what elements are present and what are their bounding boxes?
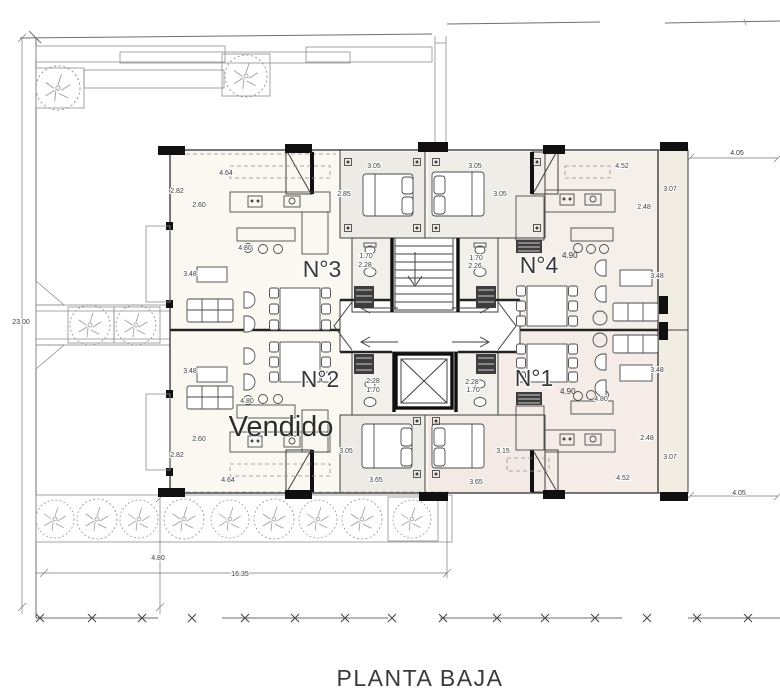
planter (222, 54, 270, 96)
dimension-label: 3.15 (496, 448, 510, 455)
unit-height-note-n1: 4.90 (560, 387, 576, 396)
dimension-label: 3.07 (663, 454, 677, 461)
dimension-label: 2.48 (640, 435, 654, 442)
dimension-label: 4.05 (732, 490, 746, 497)
dining-table (280, 288, 320, 330)
dimension-label: 23.00 (12, 319, 30, 326)
dimension-label: 4.05 (730, 150, 744, 157)
dimension-label: 4.80 (151, 555, 165, 562)
dimension-label: 2.60 (192, 202, 206, 209)
dimension-label: 2.28 (366, 378, 380, 385)
dimension-label: 2.60 (192, 436, 206, 443)
tree-icon (342, 499, 382, 539)
dimension-label: 1.70 (466, 387, 480, 394)
shower (354, 286, 374, 308)
dimension-label: 2.26 (468, 263, 482, 270)
entry-walkway (36, 281, 170, 369)
garden-strip (36, 495, 452, 542)
dimension-label: 4.80 (238, 245, 252, 252)
unit-label-n3: N°3 (303, 256, 342, 282)
floor-plan-drawing: 4.64 2.82 2.60 3.48 4.80 3.05 2.85 3.05 … (0, 0, 780, 691)
dimension-label: 3.05 (367, 163, 381, 170)
floor-plan-sheet: 4.64 2.82 2.60 3.48 4.80 3.05 2.85 3.05 … (0, 0, 780, 691)
dimension-label: 2.82 (170, 188, 184, 195)
dimension-label: 4.64 (221, 477, 235, 484)
unit-label-n2: N°2 (301, 366, 340, 392)
tree-icon (254, 499, 294, 539)
tree-icon (120, 500, 158, 538)
dimension-label: 3.48 (650, 367, 664, 374)
dimension-label: 3.48 (650, 273, 664, 280)
fence-line (36, 614, 780, 622)
sideboard (197, 367, 227, 382)
dimension-label: 3.07 (663, 186, 677, 193)
tree-icon (36, 500, 74, 538)
tree-icon (211, 500, 249, 538)
tree-icon (36, 66, 80, 110)
dimension-label: 3.05 (468, 163, 482, 170)
tree-icon (393, 500, 431, 538)
dimension-label: 1.70 (469, 255, 483, 262)
floor-title: PLANTA BAJA (337, 665, 504, 691)
dimension-label: 2.85 (337, 191, 351, 198)
sofa (613, 335, 658, 353)
sold-label: Vendido (229, 411, 334, 443)
planter (388, 497, 438, 541)
dimension-label: 3.05 (493, 191, 507, 198)
dimension-label: 2.82 (170, 452, 184, 459)
dimension-label: 4.64 (219, 170, 233, 177)
tree-icon (225, 55, 267, 97)
side-terrace (146, 394, 170, 470)
sink-icon (364, 398, 376, 407)
planter-band (36, 46, 432, 110)
sofa (187, 386, 233, 409)
dimension-label: 3.05 (339, 448, 353, 455)
dimension-label: 4.80 (240, 398, 254, 405)
shower (476, 286, 496, 308)
unit-label-n4: N°4 (520, 252, 559, 278)
sideboard (620, 270, 652, 286)
tree-icon (77, 499, 117, 539)
unit-label-n1: N°1 (515, 365, 554, 391)
dimension-label: 4.80 (594, 396, 608, 403)
dimension-label: 3.48 (183, 271, 197, 278)
sofa (187, 299, 233, 322)
sofa (613, 303, 658, 321)
dimension-label: 16.35 (231, 571, 249, 578)
sink-icon (474, 398, 486, 407)
dimension-label: 4.52 (616, 475, 630, 482)
tree-icon (164, 499, 204, 539)
sideboard (620, 365, 652, 381)
dining-table (527, 286, 567, 326)
unit-height-note-n4: 4.90 (562, 251, 578, 260)
sideboard (197, 267, 227, 282)
dimension-label: 3.48 (183, 368, 197, 375)
dimension-label: 2.28 (465, 379, 479, 386)
dimension-label: 3.65 (469, 479, 483, 486)
tree-icon (299, 500, 337, 538)
dimension-label: 1.70 (359, 253, 373, 260)
dimension-label: 1.70 (366, 387, 380, 394)
dimension-label: 2.28 (358, 262, 372, 269)
side-terrace (146, 226, 170, 302)
dimension-label: 2.48 (637, 204, 651, 211)
dimension-label: 3.65 (369, 477, 383, 484)
dimension-label: 4.52 (615, 163, 629, 170)
